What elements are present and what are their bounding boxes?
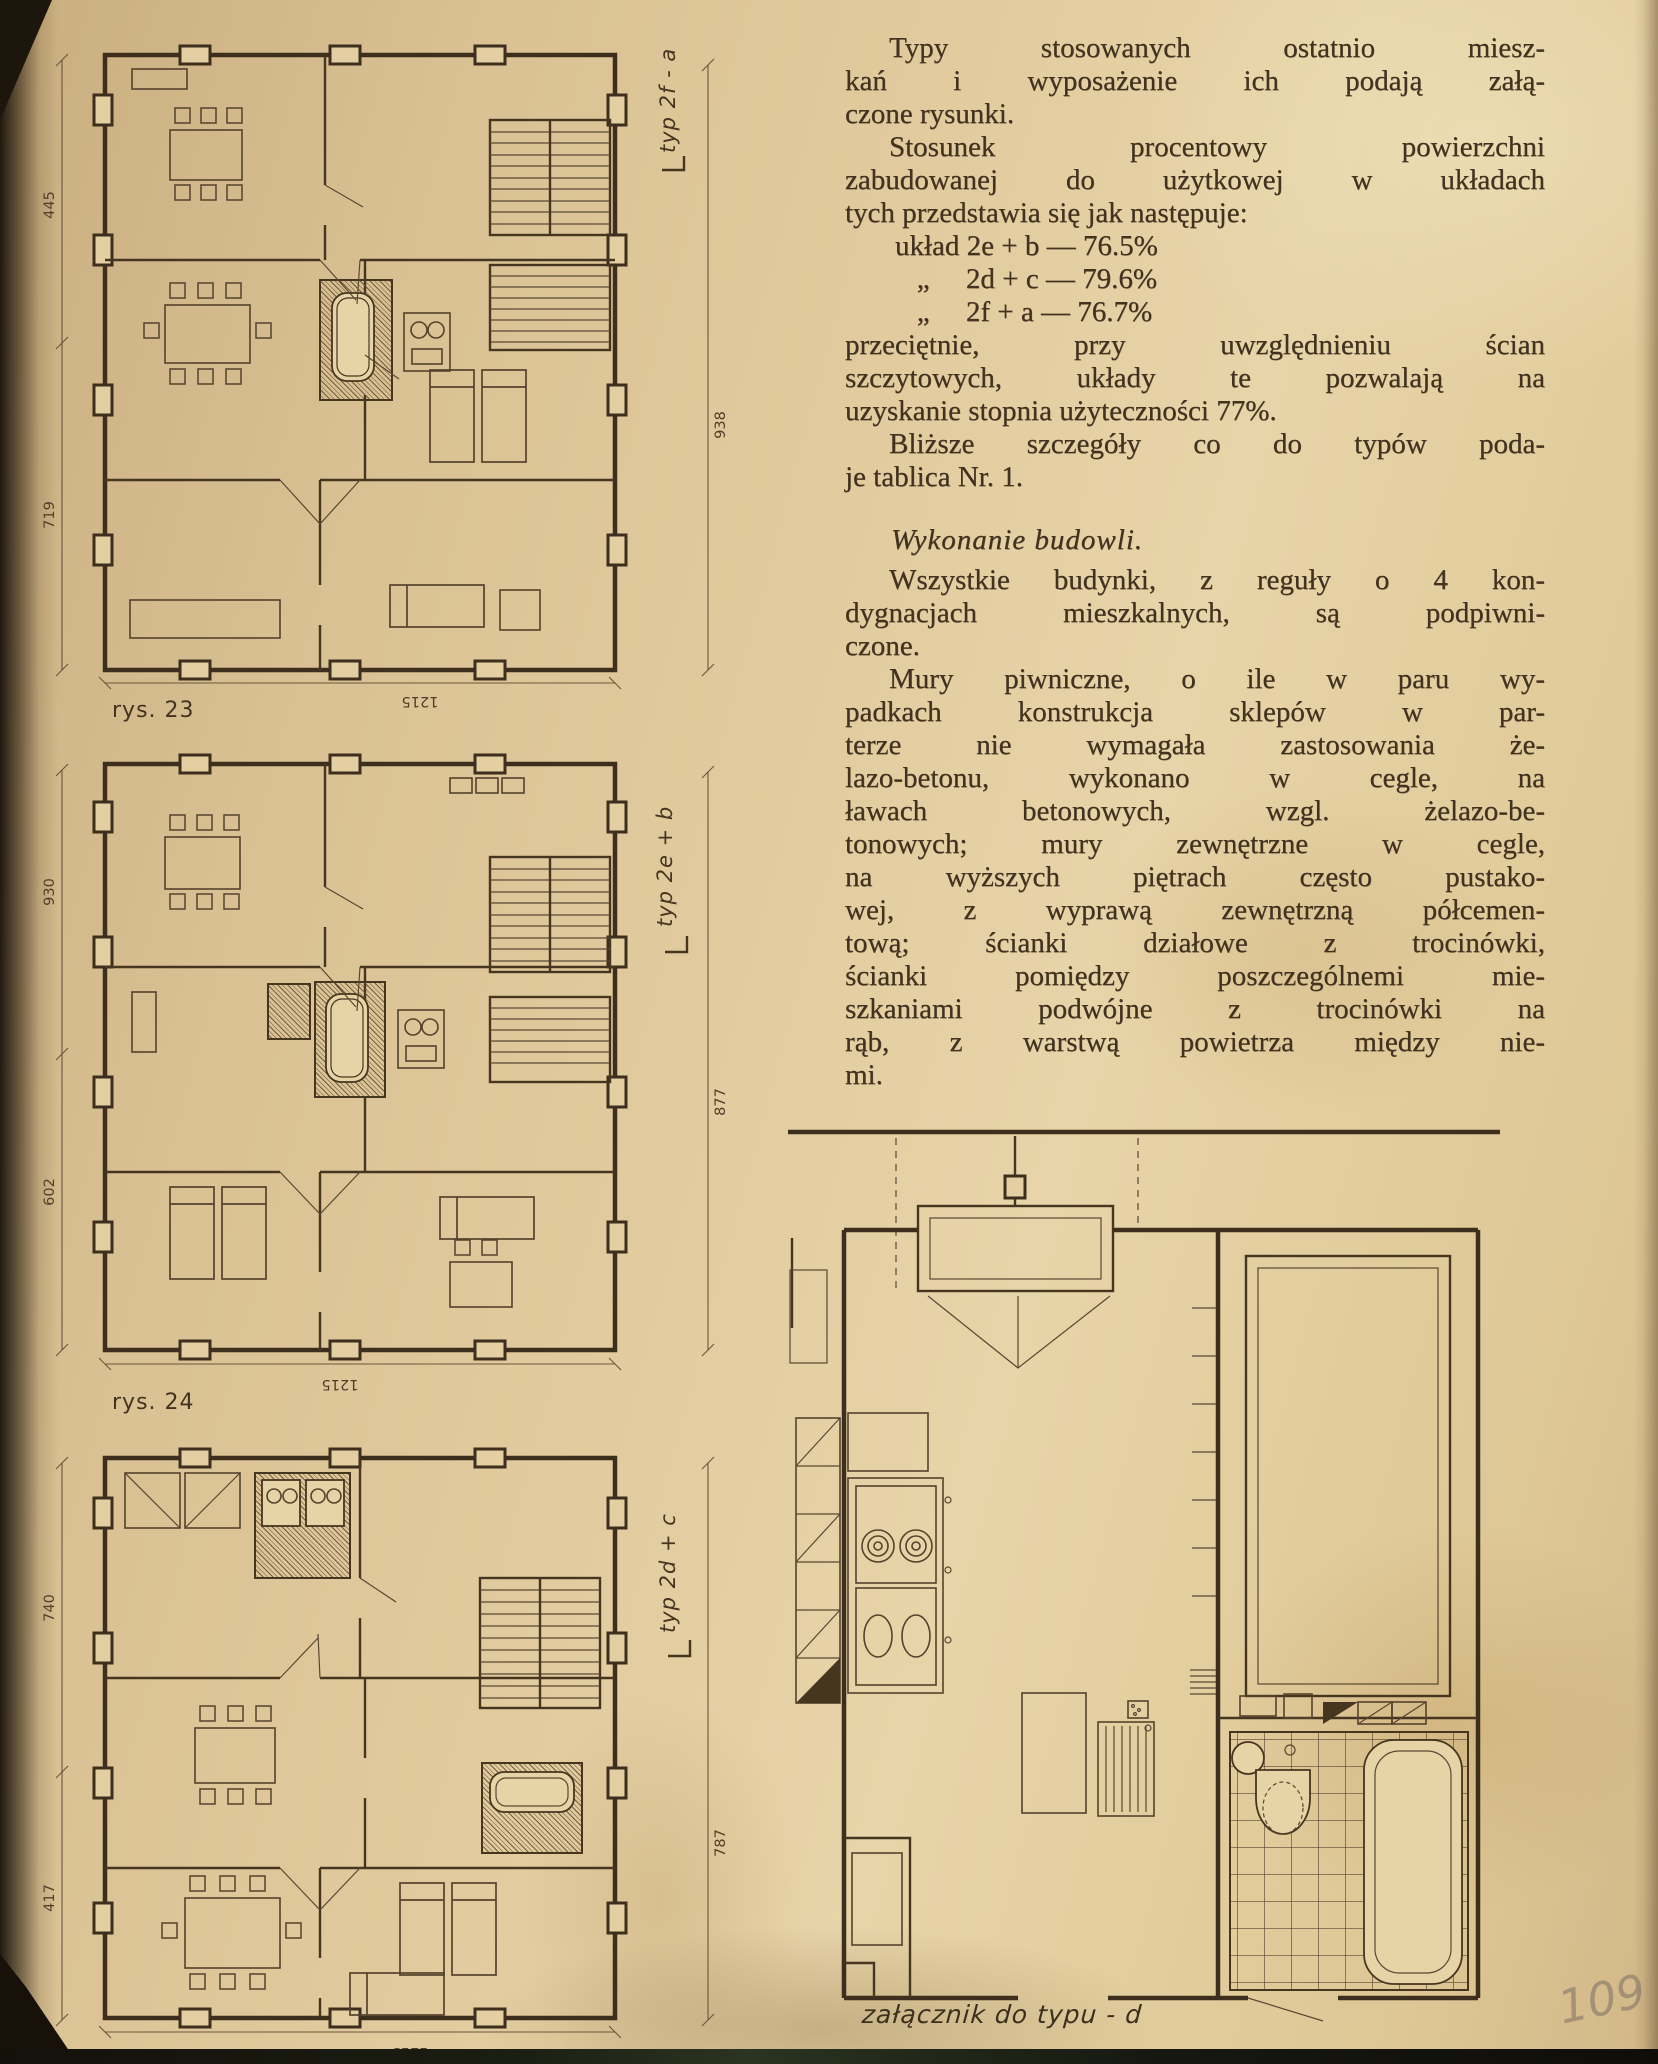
text-line: dygnacjach mieszkalnych, są podpiwni- [845, 597, 1545, 630]
handwritten-page-number: 109 [1553, 1963, 1650, 2034]
text-line: terze nie wymagała zastosowania że- [845, 729, 1545, 762]
dimension-right: 938 [702, 59, 729, 676]
floor-plan-rys24: 930 602 [20, 742, 760, 1390]
dimension-right: 877 [702, 766, 729, 1356]
stove-icon [404, 313, 450, 371]
text-line: tonowych; mury zewnętrzne w cegle, [845, 828, 1545, 861]
paragraph: Bliższe szczegóły co do typów poda-je ta… [845, 428, 1545, 494]
text-line: układ 2e + b — 76.5% [845, 230, 1545, 263]
dining-furniture [162, 1706, 301, 1989]
bathroom [1218, 1694, 1478, 2021]
text-line: Wykonanie budowli. [845, 524, 1545, 557]
neighbor-fragment [790, 1238, 827, 1363]
dining-furniture [132, 69, 271, 384]
window-bay [896, 1136, 1138, 1368]
text-line: „ 2f + a — 76.7% [845, 296, 1545, 329]
dimension-left: 740 417 [42, 1457, 68, 2026]
paragraph: Mury piwniczne, o ile w paru wy-padkach … [845, 663, 1545, 1092]
text-line: Mury piwniczne, o ile w paru wy- [845, 663, 1545, 696]
lower-left-closet [844, 1838, 910, 1998]
hall-furniture [1022, 1693, 1154, 1816]
svg-text:typ 2f - a: typ 2f - a [656, 48, 680, 153]
text-line: uzyskanie stopnia użyteczności 77%. [845, 395, 1545, 428]
svg-text:1215: 1215 [322, 1376, 359, 1392]
detail-plan-typ-d [778, 1118, 1518, 2023]
text-line: Wszystkie budynki, z reguły o 4 kon- [845, 564, 1545, 597]
svg-text:938: 938 [713, 411, 729, 439]
beds [350, 1883, 496, 2015]
hall-wall-radiator [1190, 1230, 1218, 1998]
door-swing [1248, 1998, 1323, 2021]
section-heading: Wykonanie budowli. [845, 524, 1545, 557]
paragraph: Typy stosowanych ostatnio miesz-kań i wy… [845, 32, 1545, 131]
figure-caption-rys23: rys. 23 [112, 698, 195, 723]
text-line: Bliższe szczegóły co do typów poda- [845, 428, 1545, 461]
bathtub-icon [326, 994, 368, 1082]
svg-text:787: 787 [713, 1829, 729, 1857]
text-line: Stosunek procentowy powierzchni [845, 131, 1545, 164]
text-line: Typy stosowanych ostatnio miesz- [845, 32, 1545, 65]
text-line: padkach konstrukcja sklepów w par- [845, 696, 1545, 729]
kitchen [255, 1473, 350, 1578]
floor-plan-rys23: 445 719 [20, 25, 760, 725]
figure-caption-rys24: rys. 24 [112, 1390, 195, 1415]
text-line: zabudowanej do użytkowej w układach [845, 164, 1545, 197]
bathroom [482, 1763, 582, 1853]
type-label: typ 2d + c [656, 1513, 690, 1656]
text-line: czone rysunki. [845, 98, 1545, 131]
text-line: czone. [845, 630, 1545, 663]
text-line: je tablica Nr. 1. [845, 461, 1545, 494]
floor-plan-typ2dc: 740 417 [20, 1428, 760, 2064]
paragraph: układ 2e + b — 76.5% „ 2d + c — 79.6% „ … [845, 230, 1545, 329]
type-label: typ 2f - a [656, 48, 684, 170]
text-line: na wyższych piętrach często pustako- [845, 861, 1545, 894]
detail-caption: załącznik do typu - d [861, 2000, 1143, 2029]
text-line: rąb, z warstwą powietrza między nie- [845, 1026, 1545, 1059]
kitchen-cells [450, 778, 524, 793]
article-text: Typy stosowanych ostatnio miesz-kań i wy… [845, 32, 1545, 1092]
svg-text:602: 602 [42, 1178, 58, 1206]
type-label: typ 2e + b [653, 806, 687, 952]
text-line: tową; ścianki działowe z trocinówki, [845, 927, 1545, 960]
text-line: ławach betonowych, wzgl. żelazo-be- [845, 795, 1545, 828]
right-page-edge [1634, 0, 1658, 2064]
text-line: przeciętnie, przy uwzględnieniu ścian [845, 329, 1545, 362]
paragraph: Wszystkie budynki, z reguły o 4 kon-dygn… [845, 564, 1545, 663]
text-line: szkaniami podwójne z trocinówki na [845, 993, 1545, 1026]
bottom-book-edge [0, 2049, 1658, 2064]
stove-icon [398, 1010, 444, 1068]
bathroom [268, 982, 385, 1097]
text-line: „ 2d + c — 79.6% [845, 263, 1545, 296]
svg-text:740: 740 [42, 1594, 58, 1622]
svg-text:417: 417 [42, 1884, 58, 1912]
scanned-page: 445 719 [0, 0, 1658, 2064]
text-line: lazo-betonu, wykonano w cegle, na [845, 762, 1545, 795]
text-line: szczytowych, układy te pozwalają na [845, 362, 1545, 395]
paragraph: przeciętnie, przy uwzględnieniu ścianszc… [845, 329, 1545, 428]
svg-text:typ 2d + c: typ 2d + c [656, 1513, 680, 1633]
hatched-cabinet [796, 1418, 840, 1703]
bathtub-icon [1364, 1740, 1462, 1984]
text-line: wej, z wyprawą zewnętrzną półcemen- [845, 894, 1545, 927]
staircase [490, 120, 610, 350]
bathroom [320, 280, 392, 400]
beds [130, 370, 540, 638]
text-line: kań i wyposażenie ich podają załą- [845, 65, 1545, 98]
text-line: ścianki pomiędzy poszczególnemi mie- [845, 960, 1545, 993]
dimension-bottom: 1215 [99, 1358, 621, 1392]
interior-walls [105, 1458, 615, 2018]
svg-text:877: 877 [713, 1088, 729, 1116]
dimension-left: 930 602 [42, 764, 68, 1356]
svg-text:1215: 1215 [402, 693, 439, 709]
svg-text:930: 930 [42, 878, 58, 906]
svg-text:445: 445 [42, 191, 58, 219]
wardrobes [125, 1473, 240, 1528]
dimension-left: 445 719 [42, 54, 68, 676]
text-line: mi. [845, 1059, 1545, 1092]
door-swings [280, 1578, 396, 1910]
text-line: tych przedstawia się jak następuje: [845, 197, 1545, 230]
staircase [490, 857, 610, 1082]
svg-text:typ 2e + b: typ 2e + b [653, 806, 677, 927]
bathtub-icon [332, 293, 374, 381]
upper-right-room [1246, 1256, 1450, 1696]
kitchen-unit [848, 1413, 951, 1693]
staircase [480, 1578, 600, 1708]
svg-text:719: 719 [42, 501, 58, 529]
paragraph: Stosunek procentowy powierzchnizabudowan… [845, 131, 1545, 230]
dimension-right: 787 [702, 1457, 729, 2026]
